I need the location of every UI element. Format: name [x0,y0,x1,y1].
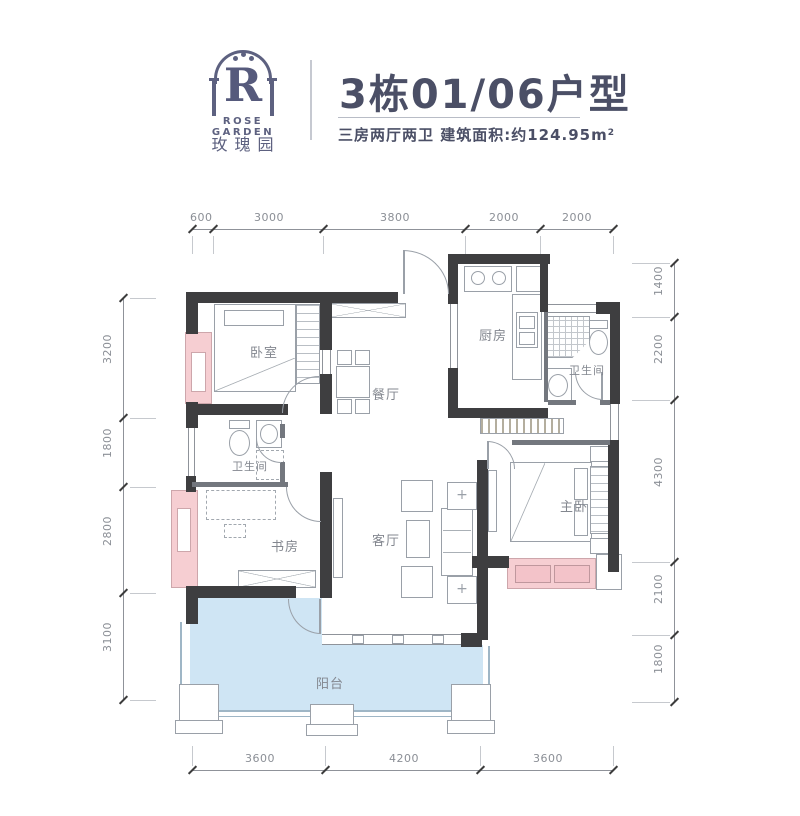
dim-ext [632,317,670,318]
dining-chair [355,350,370,365]
dim-ext [192,236,193,254]
window-pane [432,635,444,644]
dim-line-left [123,298,124,700]
dim-label: 3600 [245,752,275,765]
room-label-dining: 餐厅 [372,384,400,403]
dim-label: 3200 [101,334,114,364]
dim-label: 2000 [562,211,592,224]
dim-ext [480,746,481,766]
balcony-door-leaf [319,599,321,634]
toilet-bowl [589,330,608,355]
dim-ext [323,236,324,254]
coffee-table [406,520,430,558]
master-side-window [610,404,619,442]
bedroom-wall-window [322,350,331,376]
partition-wall [548,400,576,405]
master-bay-cushion [554,565,590,583]
stove-burner-icon [492,271,506,285]
shower-stall [546,316,590,358]
dim-line-bottom [192,770,613,771]
dim-ext [613,236,614,254]
kitchen-sink-basin [519,316,535,329]
dim-ext [613,746,614,766]
balcony-post [179,684,219,724]
page-subtitle: 三房两厅两卫 建筑面积:约124.95m2 [338,124,615,145]
dim-ext [540,236,541,254]
kitchen-fridge [516,266,542,292]
dim-label: 1800 [101,428,114,458]
balcony-post [451,684,491,724]
bedroom-bay-window-inner [191,352,206,392]
room-label-bathroom2: 卫生间 [232,458,268,474]
study-chair [224,524,246,538]
dim-ext [632,263,670,264]
sofa-seam [443,530,471,531]
toilet-tank [589,320,608,329]
dim-label: 2800 [101,516,114,546]
dim-label: 3800 [380,211,410,224]
dim-tick [609,224,618,233]
wall [186,292,198,334]
wall [610,302,620,404]
dim-label: 4300 [652,457,665,487]
dining-table [336,366,370,398]
dining-chair [337,399,352,414]
dim-ext [465,236,466,254]
dim-label: 3600 [533,752,563,765]
dining-cabinet [330,303,406,318]
wall [186,586,198,624]
wall [540,262,548,312]
master-bed-fold [511,463,545,541]
dim-tick [670,697,679,706]
bedroom-wardrobe [296,304,320,384]
dim-ext [130,700,156,701]
stove-burner-icon [471,271,485,285]
dim-tick [119,695,128,704]
wall [477,460,488,640]
bathroom2-side-window [188,428,195,478]
dining-chair [337,350,352,365]
dining-chair [355,399,370,414]
dim-label: 2200 [652,334,665,364]
partition-wall [280,424,285,438]
window-pane [352,635,364,644]
room-label-living: 客厅 [372,530,400,549]
bathroom-top-window [548,304,598,313]
armchair [401,480,433,512]
kitchen-sliding-door [450,304,458,370]
hall-shoe-cabinet [480,418,564,434]
subtitle-text: 三房两厅两卫 建筑面积:约124.95 [338,126,591,144]
dim-label: 1800 [652,644,665,674]
dim-label: 600 [190,211,213,224]
room-label-bedroom: 卧室 [250,342,278,361]
logo-name-cn: 玫瑰园 [196,131,296,155]
wall [320,292,332,350]
wall [608,440,619,572]
study-door-arc [286,487,321,522]
entry-door-arc [403,250,449,294]
balcony-post-base [447,720,495,734]
room-label-bathroom1: 卫生间 [569,362,605,378]
area-superscript: 2 [608,128,615,138]
title-underline [338,117,580,118]
bedroom-pillow [224,310,284,326]
wall [448,408,548,418]
dim-ext [130,298,156,299]
dim-line-top [192,229,613,230]
dim-ext [130,418,156,419]
partition-wall [192,482,288,487]
floorplan-page: R ROSE GARDEN 玫瑰园 3栋01/06户型 三房两厅两卫 建筑面积:… [0,0,800,816]
dim-ext [192,746,193,766]
toilet-bowl [229,430,250,456]
armchair [401,566,433,598]
dim-tick [609,765,618,774]
tv-cabinet [333,498,343,578]
dim-ext [632,562,670,563]
sofa [441,508,473,576]
sofa-seam [443,552,471,553]
balcony-post-base [306,724,358,736]
master-door-arc [487,441,515,469]
dim-label: 3100 [101,622,114,652]
wall [186,292,398,303]
wall [320,374,332,414]
wall [448,254,550,264]
partition-wall [600,400,610,405]
room-label-master: 主卧 [560,496,588,515]
dim-ext [632,702,670,703]
dim-label: 4200 [389,752,419,765]
dim-label: 3000 [254,211,284,224]
kitchen-sink-basin [519,332,535,345]
balcony-floor [190,598,483,712]
room-label-balcony: 阳台 [316,673,344,692]
wall [186,586,296,598]
wall [320,472,332,598]
toilet-tank [229,420,250,429]
area-unit: m [591,126,608,144]
room-label-study: 书房 [271,536,299,555]
dim-label: 2100 [652,574,665,604]
master-tv-cabinet [488,470,497,532]
dim-ext [632,400,670,401]
wall [472,556,509,568]
entry-door-leaf [403,250,405,294]
dim-label: 1400 [652,266,665,296]
plant-icon: + [447,576,477,604]
partition-wall [280,462,285,484]
dim-ext [130,487,156,488]
partition-wall [512,440,610,445]
master-wardrobe [590,466,610,534]
dim-ext [130,593,156,594]
dim-ext [325,746,326,766]
bedroom-bed-fold [215,358,295,391]
study-desk [206,490,276,520]
wall [448,254,458,304]
wall [196,404,288,415]
balcony-post-base [175,720,223,734]
dim-ext [213,236,214,254]
nightstand [590,446,610,462]
window-pane [392,635,404,644]
study-bay-window-inner [177,508,191,552]
master-door-leaf [487,441,489,469]
dim-label: 2000 [489,211,519,224]
wall [461,633,482,647]
room-label-kitchen: 厨房 [479,325,507,344]
page-title: 3栋01/06户型 [339,62,631,120]
plant-icon: + [447,482,477,510]
bathroom-sink [548,374,568,397]
logo-letter: R [214,56,272,114]
dim-ext [632,635,670,636]
master-bay-cushion [515,565,551,583]
header-divider [310,60,312,140]
nightstand [590,538,610,554]
partition-wall [544,312,548,402]
